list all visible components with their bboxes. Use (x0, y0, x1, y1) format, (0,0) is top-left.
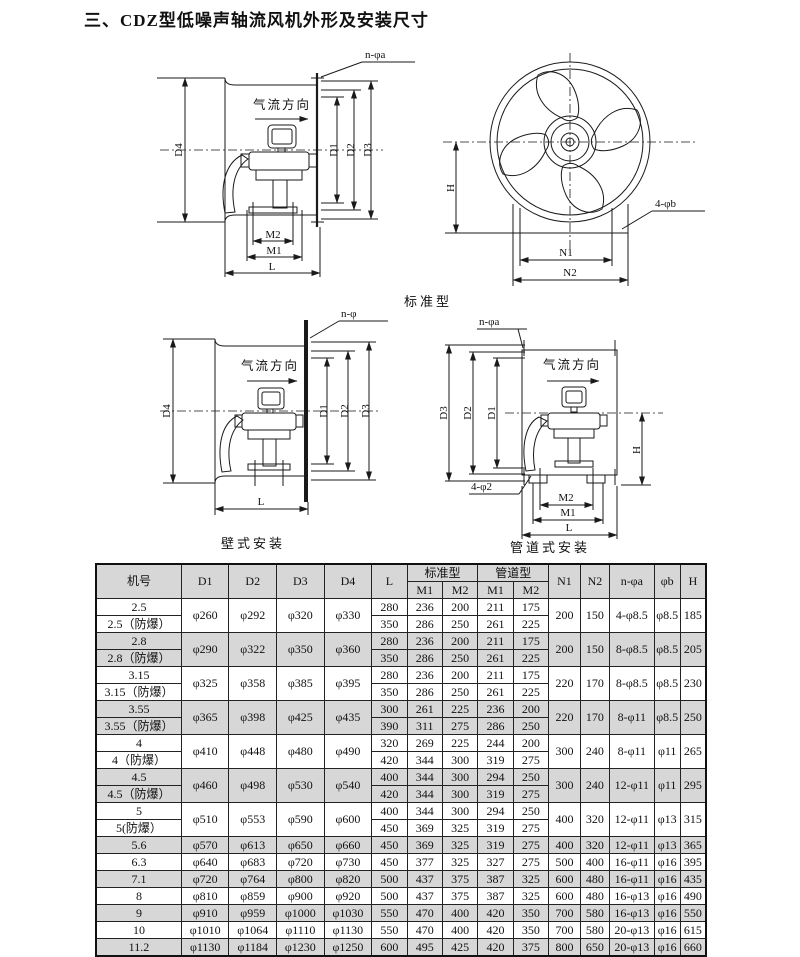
n1-cell: 400 (549, 837, 581, 854)
header-phi-b: φb (654, 564, 680, 599)
header-model: 机号 (96, 564, 181, 599)
phi-b-cell: φ16 (654, 922, 680, 939)
duct-m2-cell: 175 (513, 633, 548, 650)
table-row: 2.5 φ260 φ292 φ320 φ330 280 236 200 211 … (96, 599, 706, 616)
d4-label: D4 (173, 143, 185, 157)
airflow-label: 气流方向 (253, 97, 311, 112)
bolt-bottom-label: 4-φ2 (471, 481, 492, 493)
h-label: H (445, 184, 457, 192)
h-cell: 550 (680, 905, 706, 922)
n1-cell: 800 (549, 939, 581, 957)
n2-cell: 480 (580, 871, 609, 888)
header-standard-type: 标准型 (407, 564, 478, 582)
bolt-callout: n-φ (310, 308, 388, 338)
phi-b-cell: φ16 (654, 905, 680, 922)
fan-model-cell: 6.3 (96, 854, 181, 871)
std-m2-cell: 375 (442, 871, 477, 888)
d2-cell: φ358 (229, 667, 277, 701)
duct-m1-cell: 286 (478, 718, 513, 735)
d4-cell: φ820 (324, 871, 372, 888)
std-m2-cell: 225 (442, 701, 477, 718)
airflow-annotation: 气流方向 (241, 358, 299, 381)
d1-cell: φ810 (181, 888, 229, 905)
std-m1-cell: 236 (407, 599, 442, 616)
d3-label: D3 (438, 406, 450, 420)
airflow-annotation: 气流方向 (543, 357, 601, 381)
n2-cell: 170 (580, 701, 609, 735)
std-m2-cell: 400 (442, 922, 477, 939)
phi-b-cell: φ8.5 (654, 667, 680, 701)
airflow-annotation: 气流方向 (253, 97, 311, 119)
std-m1-cell: 269 (407, 735, 442, 752)
d2-cell: φ448 (229, 735, 277, 769)
l-cell: 450 (372, 837, 407, 854)
n-phi-a-cell: 16-φ11 (610, 854, 655, 871)
d2-cell: φ764 (229, 871, 277, 888)
phi-b-cell: φ16 (654, 939, 680, 957)
d4-cell: φ490 (324, 735, 372, 769)
std-m2-cell: 200 (442, 633, 477, 650)
std-m1-cell: 286 (407, 650, 442, 667)
l-cell: 280 (372, 667, 407, 684)
fan-model-cell: 8 (96, 888, 181, 905)
table-row: 3.15 φ325 φ358 φ385 φ395 280 236 200 211… (96, 667, 706, 684)
duct-m1-cell: 261 (478, 650, 513, 667)
n-phi-a-cell: 12-φ11 (610, 803, 655, 837)
std-m2-cell: 250 (442, 684, 477, 701)
duct-m1-cell: 211 (478, 667, 513, 684)
table-row: 7.1 φ720 φ764 φ800 φ820 500 437 375 387 … (96, 871, 706, 888)
h-cell: 660 (680, 939, 706, 957)
l-cell: 280 (372, 599, 407, 616)
std-m1-cell: 369 (407, 820, 442, 837)
d1-cell: φ290 (181, 633, 229, 667)
n-phi-a-cell: 12-φ11 (610, 837, 655, 854)
h-cell: 615 (680, 922, 706, 939)
bolt-label: 4-φb (655, 198, 677, 210)
fan-model-cell: 2.8 (96, 633, 181, 650)
std-m1-cell: 286 (407, 684, 442, 701)
std-m1-cell: 470 (407, 922, 442, 939)
figure-wall-mount: 气流方向 n-φ D4 D1 D2 D3 (145, 306, 435, 556)
duct-m1-cell: 244 (478, 735, 513, 752)
phi-b-cell: φ8.5 (654, 633, 680, 667)
std-m1-cell: 236 (407, 667, 442, 684)
fan-model-cell: 2.8（防爆） (96, 650, 181, 667)
std-m1-cell: 344 (407, 786, 442, 803)
duct-m1-cell: 294 (478, 803, 513, 820)
l-cell: 300 (372, 701, 407, 718)
d4-cell: φ540 (324, 769, 372, 803)
fan-model-cell: 4（防爆） (96, 752, 181, 769)
d1-cell: φ410 (181, 735, 229, 769)
fan-model-cell: 4 (96, 735, 181, 752)
dimensions-d1-d2-d3: D1 D2 D3 (321, 81, 378, 219)
std-m2-cell: 300 (442, 769, 477, 786)
h-cell: 365 (680, 837, 706, 854)
motor-assembly (223, 125, 317, 213)
m1-label: M1 (266, 245, 281, 257)
d3-label: D3 (360, 404, 372, 418)
std-m2-cell: 325 (442, 820, 477, 837)
n2-cell: 320 (580, 837, 609, 854)
fan-model-cell: 3.55（防爆） (96, 718, 181, 735)
d3-cell: φ385 (277, 667, 325, 701)
m2-label: M2 (265, 229, 280, 241)
duct-m2-cell: 200 (513, 701, 548, 718)
n1-cell: 600 (549, 888, 581, 905)
std-m1-cell: 369 (407, 837, 442, 854)
duct-m1-cell: 319 (478, 837, 513, 854)
d2-cell: φ553 (229, 803, 277, 837)
std-m1-cell: 344 (407, 752, 442, 769)
d2-cell: φ398 (229, 701, 277, 735)
fan-model-cell: 3.15 (96, 667, 181, 684)
h-cell: 295 (680, 769, 706, 803)
l-cell: 550 (372, 905, 407, 922)
duct-m2-cell: 225 (513, 650, 548, 667)
header-h: H (680, 564, 706, 599)
std-m1-cell: 495 (407, 939, 442, 957)
d3-cell: φ720 (277, 854, 325, 871)
n2-cell: 580 (580, 922, 609, 939)
std-m2-cell: 275 (442, 718, 477, 735)
d3-cell: φ800 (277, 871, 325, 888)
l-label: L (566, 522, 573, 534)
d2-cell: φ292 (229, 599, 277, 633)
duct-m1-cell: 236 (478, 701, 513, 718)
l-cell: 600 (372, 939, 407, 957)
table-row: 11.2 φ1130 φ1184 φ1230 φ1250 600 495 425… (96, 939, 706, 957)
h-cell: 265 (680, 735, 706, 769)
fan-model-cell: 2.5（防爆） (96, 616, 181, 633)
n2-cell: 480 (580, 888, 609, 905)
n-phi-a-cell: 8-φ8.5 (610, 633, 655, 667)
header-duct-m2: M2 (513, 582, 548, 599)
l-cell: 350 (372, 650, 407, 667)
n1-cell: 300 (549, 769, 581, 803)
duct-m1-cell: 327 (478, 854, 513, 871)
d3-cell: φ1110 (277, 922, 325, 939)
table-row: 5 φ510 φ553 φ590 φ600 400 344 300 294 25… (96, 803, 706, 820)
table-row: 2.8 φ290 φ322 φ350 φ360 280 236 200 211 … (96, 633, 706, 650)
l-cell: 400 (372, 803, 407, 820)
d2-cell: φ683 (229, 854, 277, 871)
d1-cell: φ640 (181, 854, 229, 871)
duct-m2-cell: 275 (513, 837, 548, 854)
h-cell: 435 (680, 871, 706, 888)
bolt-label: n-φa (365, 49, 386, 61)
std-m2-cell: 300 (442, 752, 477, 769)
duct-m2-cell: 375 (513, 939, 548, 957)
table-row: 4.5 φ460 φ498 φ530 φ540 400 344 300 294 … (96, 769, 706, 786)
n-phi-a-cell: 16-φ11 (610, 871, 655, 888)
duct-m1-cell: 211 (478, 633, 513, 650)
table-row: 3.55 φ365 φ398 φ425 φ435 300 261 225 236… (96, 701, 706, 718)
phi-b-cell: φ13 (654, 803, 680, 837)
airflow-label: 气流方向 (241, 358, 299, 373)
header-d3: D3 (277, 564, 325, 599)
h-cell: 315 (680, 803, 706, 837)
document-page: 三、CDZ型低噪声轴流风机外形及安装尺寸 (0, 0, 800, 957)
bolt-top-label: n-φa (479, 316, 500, 328)
duct-m1-cell: 319 (478, 752, 513, 769)
l-cell: 320 (372, 735, 407, 752)
mounting-base (513, 204, 628, 233)
std-m1-cell: 286 (407, 616, 442, 633)
h-cell: 395 (680, 854, 706, 871)
dimensions-table: 机号 D1 D2 D3 D4 L 标准型 管道型 N1 N2 n-φa φb H… (95, 563, 707, 957)
header-n1: N1 (549, 564, 581, 599)
std-m1-cell: 261 (407, 701, 442, 718)
duct-m2-cell: 275 (513, 786, 548, 803)
l-cell: 400 (372, 769, 407, 786)
n-phi-a-cell: 16-φ13 (610, 888, 655, 905)
d3-cell: φ320 (277, 599, 325, 633)
d4-cell: φ395 (324, 667, 372, 701)
dimension-l: L (215, 483, 308, 515)
d2-label: D2 (339, 404, 351, 417)
l-cell: 450 (372, 820, 407, 837)
l-cell: 390 (372, 718, 407, 735)
d3-cell: φ480 (277, 735, 325, 769)
d3-cell: φ900 (277, 888, 325, 905)
motor-assembly (524, 387, 607, 471)
l-cell: 420 (372, 752, 407, 769)
n1-label: N1 (559, 247, 572, 259)
d4-cell: φ600 (324, 803, 372, 837)
l-cell: 280 (372, 633, 407, 650)
d4-label: D4 (161, 404, 173, 418)
duct-m2-cell: 325 (513, 888, 548, 905)
n1-cell: 500 (549, 854, 581, 871)
d1-cell: φ260 (181, 599, 229, 633)
d2-cell: φ322 (229, 633, 277, 667)
header-d2: D2 (229, 564, 277, 599)
l-cell: 500 (372, 888, 407, 905)
duct-m2-cell: 325 (513, 871, 548, 888)
d1-cell: φ570 (181, 837, 229, 854)
bolt-callout: 4-φb (622, 198, 705, 229)
n2-label: N2 (563, 267, 576, 279)
d3-cell: φ650 (277, 837, 325, 854)
d4-cell: φ1030 (324, 905, 372, 922)
l-cell: 420 (372, 786, 407, 803)
d2-label: D2 (345, 143, 357, 156)
phi-b-cell: φ8.5 (654, 599, 680, 633)
wall-mount-caption: 壁式安装 (221, 533, 285, 552)
n2-cell: 650 (580, 939, 609, 957)
n-phi-a-cell: 16-φ13 (610, 905, 655, 922)
h-cell: 230 (680, 667, 706, 701)
bolt-callout-top: n-φa (477, 316, 527, 348)
d2-cell: φ498 (229, 769, 277, 803)
d3-cell: φ590 (277, 803, 325, 837)
d1-cell: φ365 (181, 701, 229, 735)
n-phi-a-cell: 8-φ11 (610, 701, 655, 735)
l-cell: 550 (372, 922, 407, 939)
std-m1-cell: 344 (407, 803, 442, 820)
std-m1-cell: 377 (407, 854, 442, 871)
fan-model-cell: 5 (96, 803, 181, 820)
d4-cell: φ330 (324, 599, 372, 633)
duct-m1-cell: 261 (478, 684, 513, 701)
d2-cell: φ1064 (229, 922, 277, 939)
duct-m2-cell: 250 (513, 803, 548, 820)
table-row: 5.6 φ570 φ613 φ650 φ660 450 369 325 319 … (96, 837, 706, 854)
h-cell: 185 (680, 599, 706, 633)
dimensions-n1-n2: N1 N2 (513, 208, 628, 286)
std-m2-cell: 200 (442, 599, 477, 616)
d1-cell: φ1130 (181, 939, 229, 957)
n1-cell: 700 (549, 922, 581, 939)
h-cell: 205 (680, 633, 706, 667)
duct-m2-cell: 225 (513, 616, 548, 633)
std-m1-cell: 437 (407, 888, 442, 905)
std-m1-cell: 236 (407, 633, 442, 650)
l-cell: 350 (372, 616, 407, 633)
header-std-m1: M1 (407, 582, 442, 599)
n2-cell: 170 (580, 667, 609, 701)
duct-m1-cell: 387 (478, 888, 513, 905)
duct-m1-cell: 319 (478, 786, 513, 803)
header-std-m2: M2 (442, 582, 477, 599)
m1-label: M1 (560, 507, 575, 519)
d4-cell: φ660 (324, 837, 372, 854)
duct-m1-cell: 319 (478, 820, 513, 837)
h-label: H (631, 446, 643, 454)
duct-m1-cell: 261 (478, 616, 513, 633)
duct-m2-cell: 250 (513, 718, 548, 735)
table-body: 2.5 φ260 φ292 φ320 φ330 280 236 200 211 … (96, 599, 706, 957)
d1-cell: φ910 (181, 905, 229, 922)
std-m2-cell: 425 (442, 939, 477, 957)
page-title: 三、CDZ型低噪声轴流风机外形及安装尺寸 (84, 6, 429, 31)
n-phi-a-cell: 8-φ11 (610, 735, 655, 769)
duct-m2-cell: 175 (513, 667, 548, 684)
h-cell: 250 (680, 701, 706, 735)
n-phi-a-cell: 4-φ8.5 (610, 599, 655, 633)
l-label: L (258, 496, 265, 508)
duct-m2-cell: 175 (513, 599, 548, 616)
fan-model-cell: 3.55 (96, 701, 181, 718)
n1-cell: 220 (549, 667, 581, 701)
d3-cell: φ1000 (277, 905, 325, 922)
d3-cell: φ425 (277, 701, 325, 735)
n1-cell: 200 (549, 633, 581, 667)
duct-m1-cell: 294 (478, 769, 513, 786)
header-l: L (372, 564, 407, 599)
d2-cell: φ959 (229, 905, 277, 922)
l-label: L (269, 261, 276, 273)
fan-model-cell: 5.6 (96, 837, 181, 854)
phi-b-cell: φ11 (654, 769, 680, 803)
n-phi-a-cell: 8-φ8.5 (610, 667, 655, 701)
l-cell: 450 (372, 854, 407, 871)
n2-cell: 320 (580, 803, 609, 837)
bolt-callout: n-φa (321, 49, 415, 77)
duct-m1-cell: 211 (478, 599, 513, 616)
n-phi-a-cell: 20-φ13 (610, 922, 655, 939)
std-m2-cell: 325 (442, 854, 477, 871)
std-m2-cell: 200 (442, 667, 477, 684)
d2-label: D2 (462, 406, 474, 419)
header-duct-type: 管道型 (478, 564, 549, 582)
n2-cell: 400 (580, 854, 609, 871)
d2-cell: φ1184 (229, 939, 277, 957)
d1-cell: φ325 (181, 667, 229, 701)
d4-cell: φ435 (324, 701, 372, 735)
duct-m2-cell: 225 (513, 684, 548, 701)
n1-cell: 400 (549, 803, 581, 837)
fan-model-cell: 2.5 (96, 599, 181, 616)
duct-m2-cell: 275 (513, 820, 548, 837)
d4-cell: φ730 (324, 854, 372, 871)
fan-model-cell: 4.5 (96, 769, 181, 786)
n-phi-a-cell: 12-φ11 (610, 769, 655, 803)
std-m1-cell: 437 (407, 871, 442, 888)
std-m1-cell: 311 (407, 718, 442, 735)
std-m2-cell: 225 (442, 735, 477, 752)
d4-cell: φ1250 (324, 939, 372, 957)
table-header: 机号 D1 D2 D3 D4 L 标准型 管道型 N1 N2 n-φa φb H… (96, 564, 706, 599)
l-cell: 500 (372, 871, 407, 888)
fan-model-cell: 10 (96, 922, 181, 939)
n2-cell: 240 (580, 735, 609, 769)
figure-standard-side-view: 气流方向 D4 D1 D2 D3 n-φa (125, 45, 425, 295)
d1-cell: φ460 (181, 769, 229, 803)
phi-b-cell: φ11 (654, 735, 680, 769)
header-d1: D1 (181, 564, 229, 599)
std-m1-cell: 344 (407, 769, 442, 786)
phi-b-cell: φ16 (654, 888, 680, 905)
fan-model-cell: 4.5（防爆） (96, 786, 181, 803)
table-row: 6.3 φ640 φ683 φ720 φ730 450 377 325 327 … (96, 854, 706, 871)
dimension-h: H (621, 413, 651, 485)
std-m2-cell: 250 (442, 650, 477, 667)
m2-label: M2 (558, 492, 573, 504)
bolt-label: n-φ (341, 308, 357, 320)
n1-cell: 200 (549, 599, 581, 633)
duct-m1-cell: 420 (478, 922, 513, 939)
std-m1-cell: 470 (407, 905, 442, 922)
duct-m1-cell: 420 (478, 939, 513, 957)
dimensions-m1-m2-l: M2 M1 L (522, 468, 617, 539)
figure-front-view: H 4-φb N1 N2 (425, 48, 765, 293)
table-row: 9 φ910 φ959 φ1000 φ1030 550 470 400 420 … (96, 905, 706, 922)
table-row: 4 φ410 φ448 φ480 φ490 320 269 225 244 20… (96, 735, 706, 752)
duct-m2-cell: 275 (513, 752, 548, 769)
duct-m1-cell: 387 (478, 871, 513, 888)
n1-cell: 600 (549, 871, 581, 888)
d1-cell: φ510 (181, 803, 229, 837)
table-row: 10 φ1010 φ1064 φ1110 φ1130 550 470 400 4… (96, 922, 706, 939)
dimension-h: H (445, 142, 513, 233)
std-m2-cell: 300 (442, 786, 477, 803)
phi-b-cell: φ8.5 (654, 701, 680, 735)
d4-cell: φ920 (324, 888, 372, 905)
duct-m2-cell: 200 (513, 735, 548, 752)
fan-model-cell: 3.15（防爆） (96, 684, 181, 701)
duct-m2-cell: 275 (513, 854, 548, 871)
n1-cell: 700 (549, 905, 581, 922)
n1-cell: 220 (549, 701, 581, 735)
duct-m2-cell: 350 (513, 905, 548, 922)
d1-label: D1 (318, 404, 330, 417)
d3-cell: φ350 (277, 633, 325, 667)
header-n-phi-a: n-φa (610, 564, 655, 599)
duct-m1-cell: 420 (478, 905, 513, 922)
